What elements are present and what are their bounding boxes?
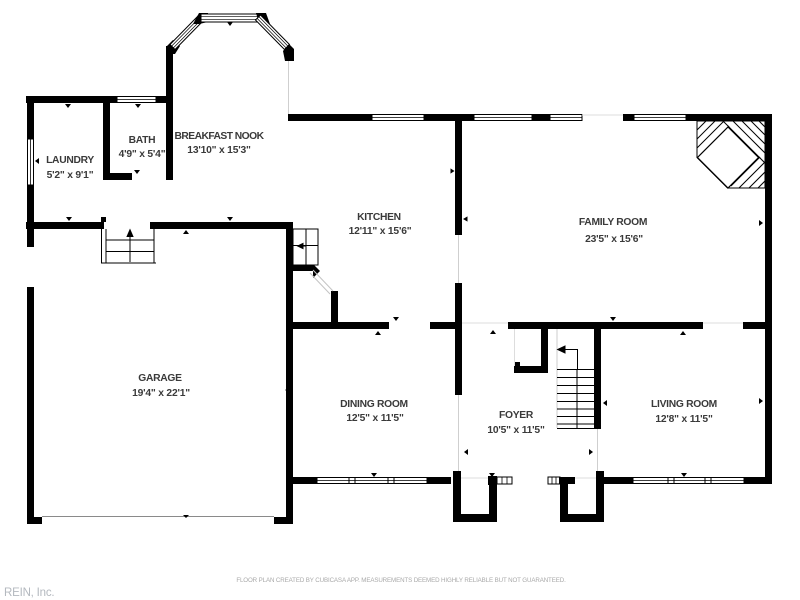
- svg-text:LIVING ROOM: LIVING ROOM: [651, 399, 717, 410]
- svg-text:LAUNDRY: LAUNDRY: [46, 155, 94, 166]
- svg-text:23'5" x 15'6": 23'5" x 15'6": [585, 234, 643, 245]
- svg-text:12'8" x 11'5": 12'8" x 11'5": [655, 414, 713, 425]
- svg-text:19'4" x 22'1": 19'4" x 22'1": [132, 388, 190, 399]
- svg-text:12'5" x 11'5": 12'5" x 11'5": [346, 413, 404, 424]
- svg-text:GARAGE: GARAGE: [138, 373, 182, 384]
- svg-text:FOYER: FOYER: [499, 410, 534, 421]
- svg-text:FLOOR PLAN CREATED BY CUBICASA: FLOOR PLAN CREATED BY CUBICASA APP. MEAS…: [236, 577, 566, 584]
- svg-text:KITCHEN: KITCHEN: [357, 212, 401, 223]
- svg-text:REIN, Inc.: REIN, Inc.: [4, 587, 54, 599]
- svg-text:BATH: BATH: [129, 135, 156, 146]
- svg-text:13'10" x 15'3": 13'10" x 15'3": [187, 145, 251, 156]
- svg-text:FAMILY ROOM: FAMILY ROOM: [579, 217, 647, 228]
- svg-text:DINING ROOM: DINING ROOM: [340, 399, 408, 410]
- svg-text:5'2" x 9'1": 5'2" x 9'1": [47, 170, 94, 181]
- svg-text:BREAKFAST NOOK: BREAKFAST NOOK: [175, 131, 265, 142]
- svg-text:4'9" x 5'4": 4'9" x 5'4": [119, 149, 166, 160]
- svg-text:12'11" x 15'6": 12'11" x 15'6": [349, 226, 412, 237]
- svg-text:10'5" x 11'5": 10'5" x 11'5": [487, 425, 545, 436]
